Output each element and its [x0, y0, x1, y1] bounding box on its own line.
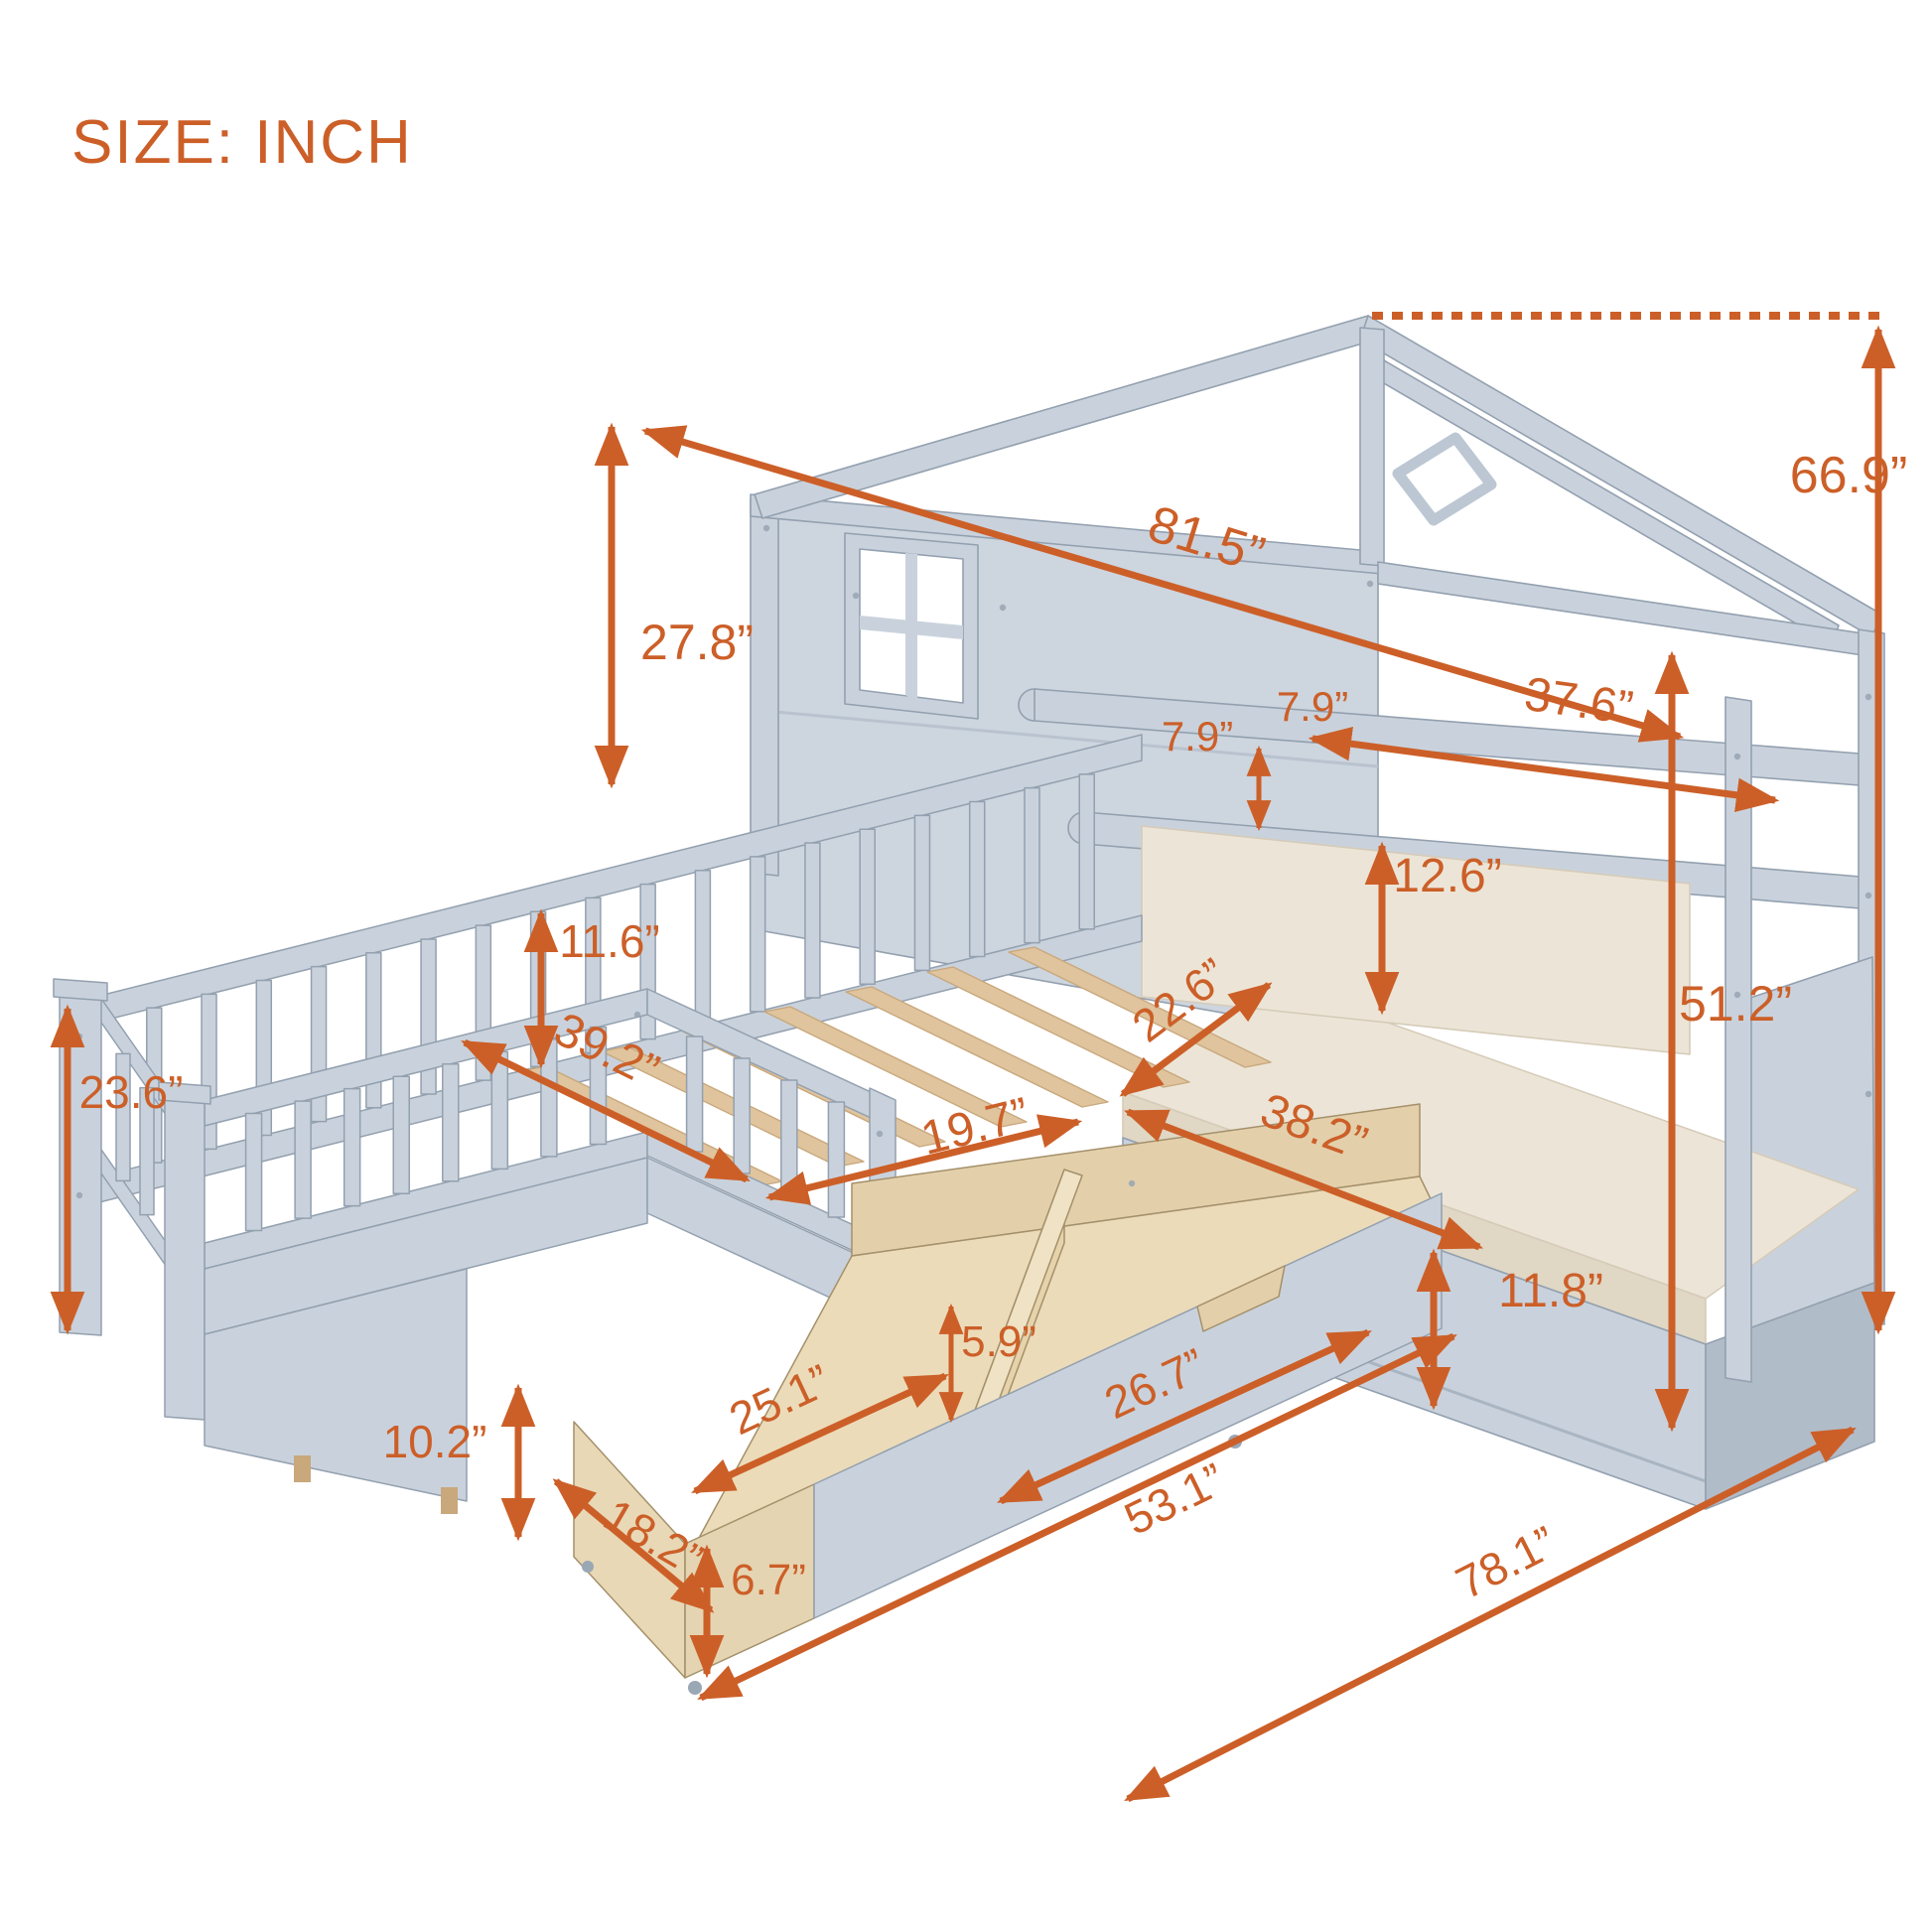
dim-label-headrest-height: 12.6” — [1393, 850, 1501, 902]
roof-chimney — [1398, 438, 1491, 520]
dim-label-house-wall-height: 27.8” — [640, 615, 754, 670]
dim-label-shelf-gap-right: 7.9” — [1277, 683, 1348, 730]
house-window — [845, 533, 978, 719]
dim-label-footprint-length: 78.1” — [1448, 1516, 1564, 1609]
dim-label-headboard-width: 37.6” — [1521, 668, 1636, 736]
bed-illustration: 66.9”81.5”27.8”7.9”7.9”37.6”12.6”11.6”51… — [0, 0, 1932, 1932]
dim-label-shelf-gap-left: 7.9” — [1162, 713, 1233, 759]
dim-arrow-footprint-length — [1128, 1430, 1853, 1799]
dim-label-platform-height: 10.2” — [383, 1416, 487, 1467]
dim-label-drawer-height: 6.7” — [731, 1556, 806, 1604]
house-left-post — [751, 498, 778, 876]
dim-label-bench-back-height: 51.2” — [1679, 976, 1792, 1032]
dim-label-divider-height: 5.9” — [961, 1317, 1036, 1366]
dim-label-rail-height: 11.6” — [559, 915, 659, 967]
product-dimension-diagram: SIZE: INCH — [0, 0, 1932, 1932]
dim-label-overall-height: 66.9” — [1790, 447, 1908, 504]
dim-label-entry-gap: 19.7” — [916, 1088, 1035, 1166]
dim-label-side-height: 23.6” — [79, 1066, 184, 1118]
dim-label-bench-base-height: 11.8” — [1498, 1265, 1603, 1317]
